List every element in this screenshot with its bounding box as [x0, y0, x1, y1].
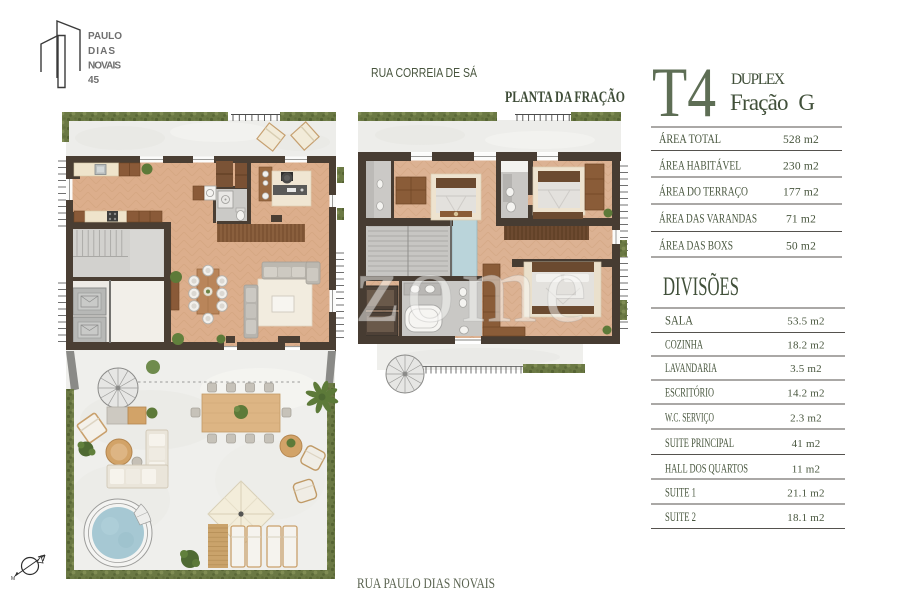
svg-text:M: M: [11, 576, 15, 582]
svg-text:LAVANDARIA: LAVANDARIA: [665, 361, 717, 375]
svg-text:ÁREA HABITÁVEL: ÁREA HABITÁVEL: [659, 158, 741, 173]
svg-text:SUITE PRINCIPAL: SUITE PRINCIPAL: [665, 436, 734, 450]
svg-text:T4: T4: [652, 54, 716, 132]
svg-text:DIAS: DIAS: [88, 46, 115, 57]
svg-text:41 m2: 41 m2: [792, 438, 821, 450]
svg-text:53.5 m2: 53.5 m2: [787, 316, 824, 328]
svg-text:14.2 m2: 14.2 m2: [787, 388, 824, 400]
svg-text:SUITE 2: SUITE 2: [665, 510, 696, 524]
svg-text:3.5 m2: 3.5 m2: [790, 363, 822, 375]
svg-text:45: 45: [88, 75, 99, 86]
svg-text:ÁREA DAS VARANDAS: ÁREA DAS VARANDAS: [659, 211, 757, 226]
svg-text:18.2 m2: 18.2 m2: [787, 340, 824, 352]
svg-text:ÁREA TOTAL: ÁREA TOTAL: [659, 131, 721, 146]
svg-text:177 m2: 177 m2: [783, 187, 819, 199]
svg-text:COZINHA: COZINHA: [665, 338, 703, 352]
svg-text:DUPLEX: DUPLEX: [731, 71, 785, 88]
svg-text:PLANTA DA FRAÇÃO: PLANTA DA FRAÇÃO: [505, 87, 625, 106]
svg-text:zome: zome: [356, 235, 594, 342]
svg-text:ÁREA DAS BOXS: ÁREA DAS BOXS: [659, 238, 733, 253]
svg-text:NOVAIS: NOVAIS: [88, 61, 121, 72]
svg-text:RUA PAULO DIAS NOVAIS: RUA PAULO DIAS NOVAIS: [357, 576, 495, 592]
svg-text:71 m2: 71 m2: [786, 214, 816, 226]
svg-text:SUITE 1: SUITE 1: [665, 486, 696, 500]
svg-text:11 m2: 11 m2: [792, 464, 820, 476]
svg-text:18.1 m2: 18.1 m2: [787, 512, 824, 524]
svg-text:DIVISÕES: DIVISÕES: [663, 272, 739, 301]
svg-text:528 m2: 528 m2: [783, 134, 819, 146]
svg-text:2.3 m2: 2.3 m2: [790, 413, 822, 425]
svg-text:Fração G: Fração G: [730, 90, 815, 115]
svg-text:HALL DOS QUARTOS: HALL DOS QUARTOS: [665, 462, 748, 476]
svg-text:ESCRITÓRIO: ESCRITÓRIO: [665, 386, 714, 400]
svg-text:50 m2: 50 m2: [786, 241, 816, 253]
svg-text:SALA: SALA: [665, 314, 693, 328]
svg-text:W.C. SERVIÇO: W.C. SERVIÇO: [665, 411, 714, 425]
svg-text:PAULO: PAULO: [88, 31, 122, 42]
svg-text:230 m2: 230 m2: [783, 161, 819, 173]
svg-text:ÁREA DO TERRAÇO: ÁREA DO TERRAÇO: [659, 184, 748, 199]
svg-text:21.1 m2: 21.1 m2: [787, 488, 824, 500]
svg-text:RUA CORREIA DE SÁ: RUA CORREIA DE SÁ: [371, 65, 478, 80]
